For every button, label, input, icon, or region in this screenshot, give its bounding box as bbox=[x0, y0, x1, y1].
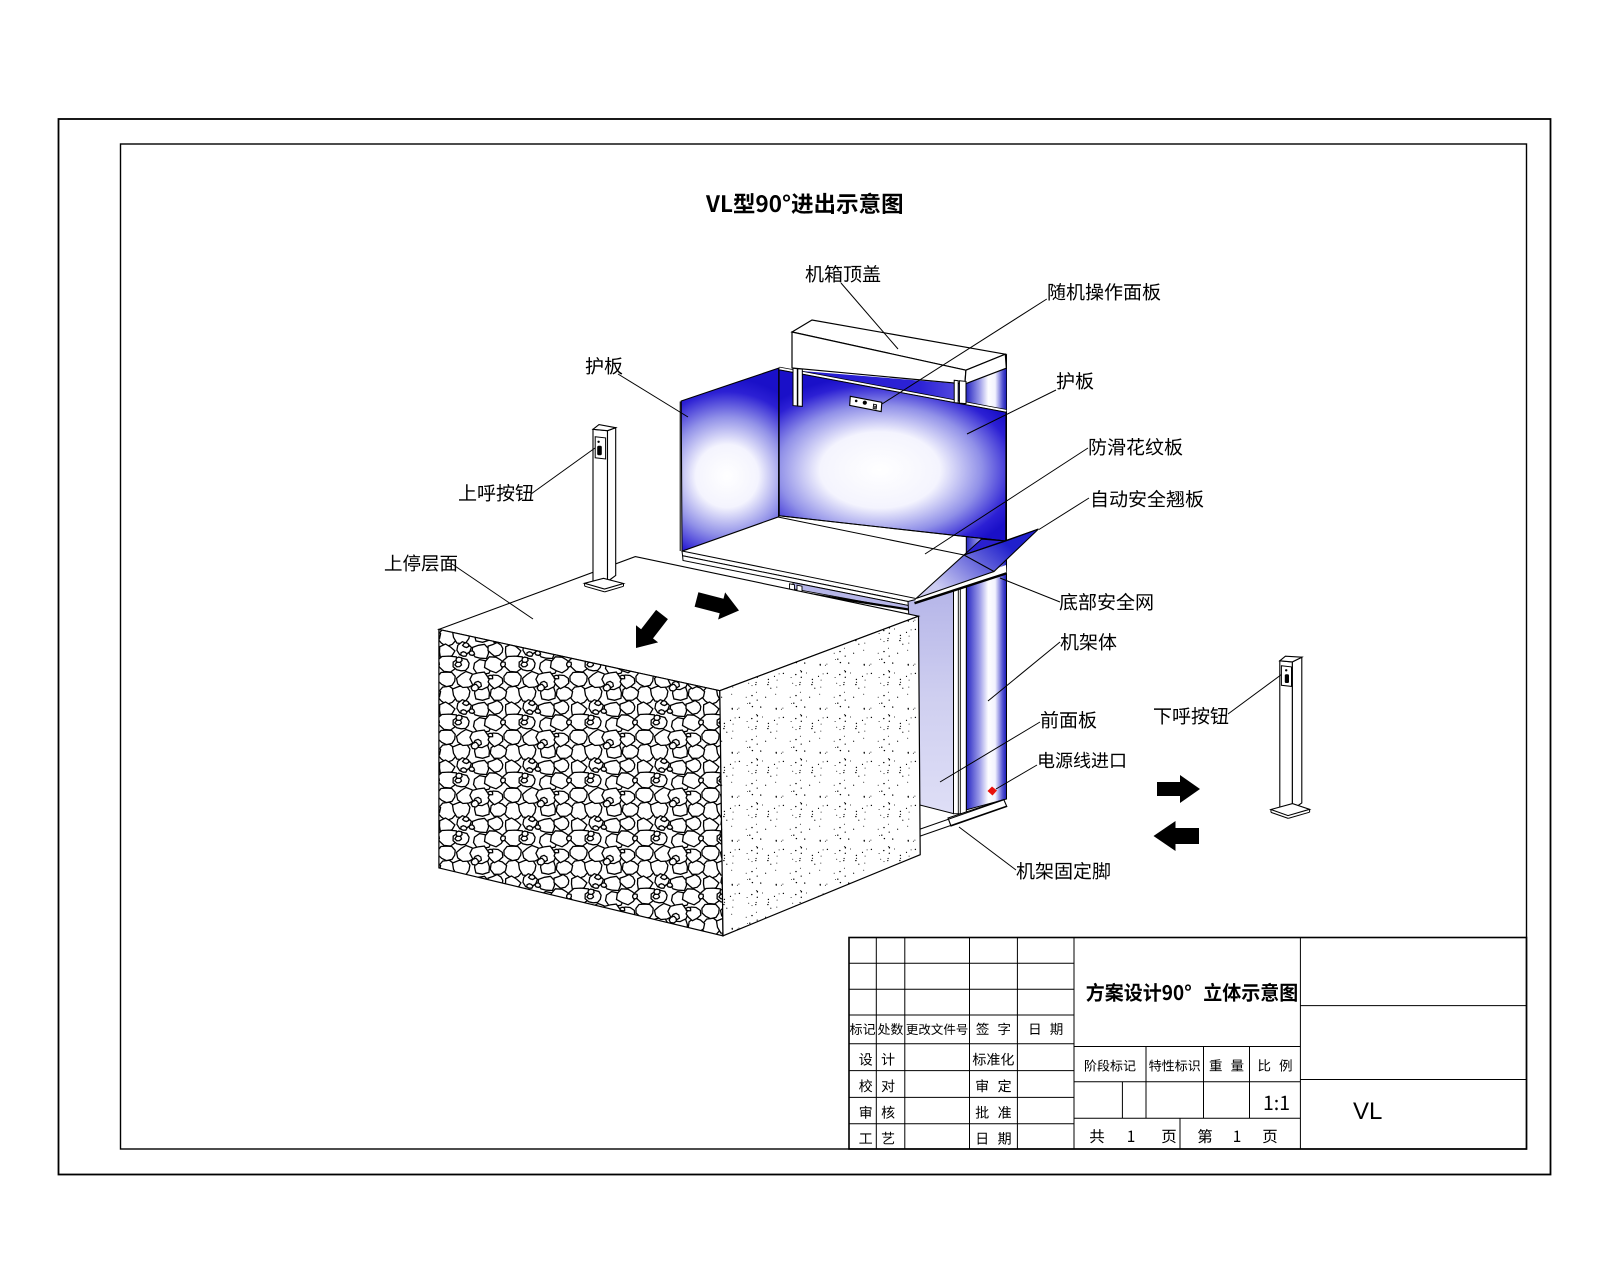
svg-text:VL: VL bbox=[1353, 1098, 1382, 1125]
